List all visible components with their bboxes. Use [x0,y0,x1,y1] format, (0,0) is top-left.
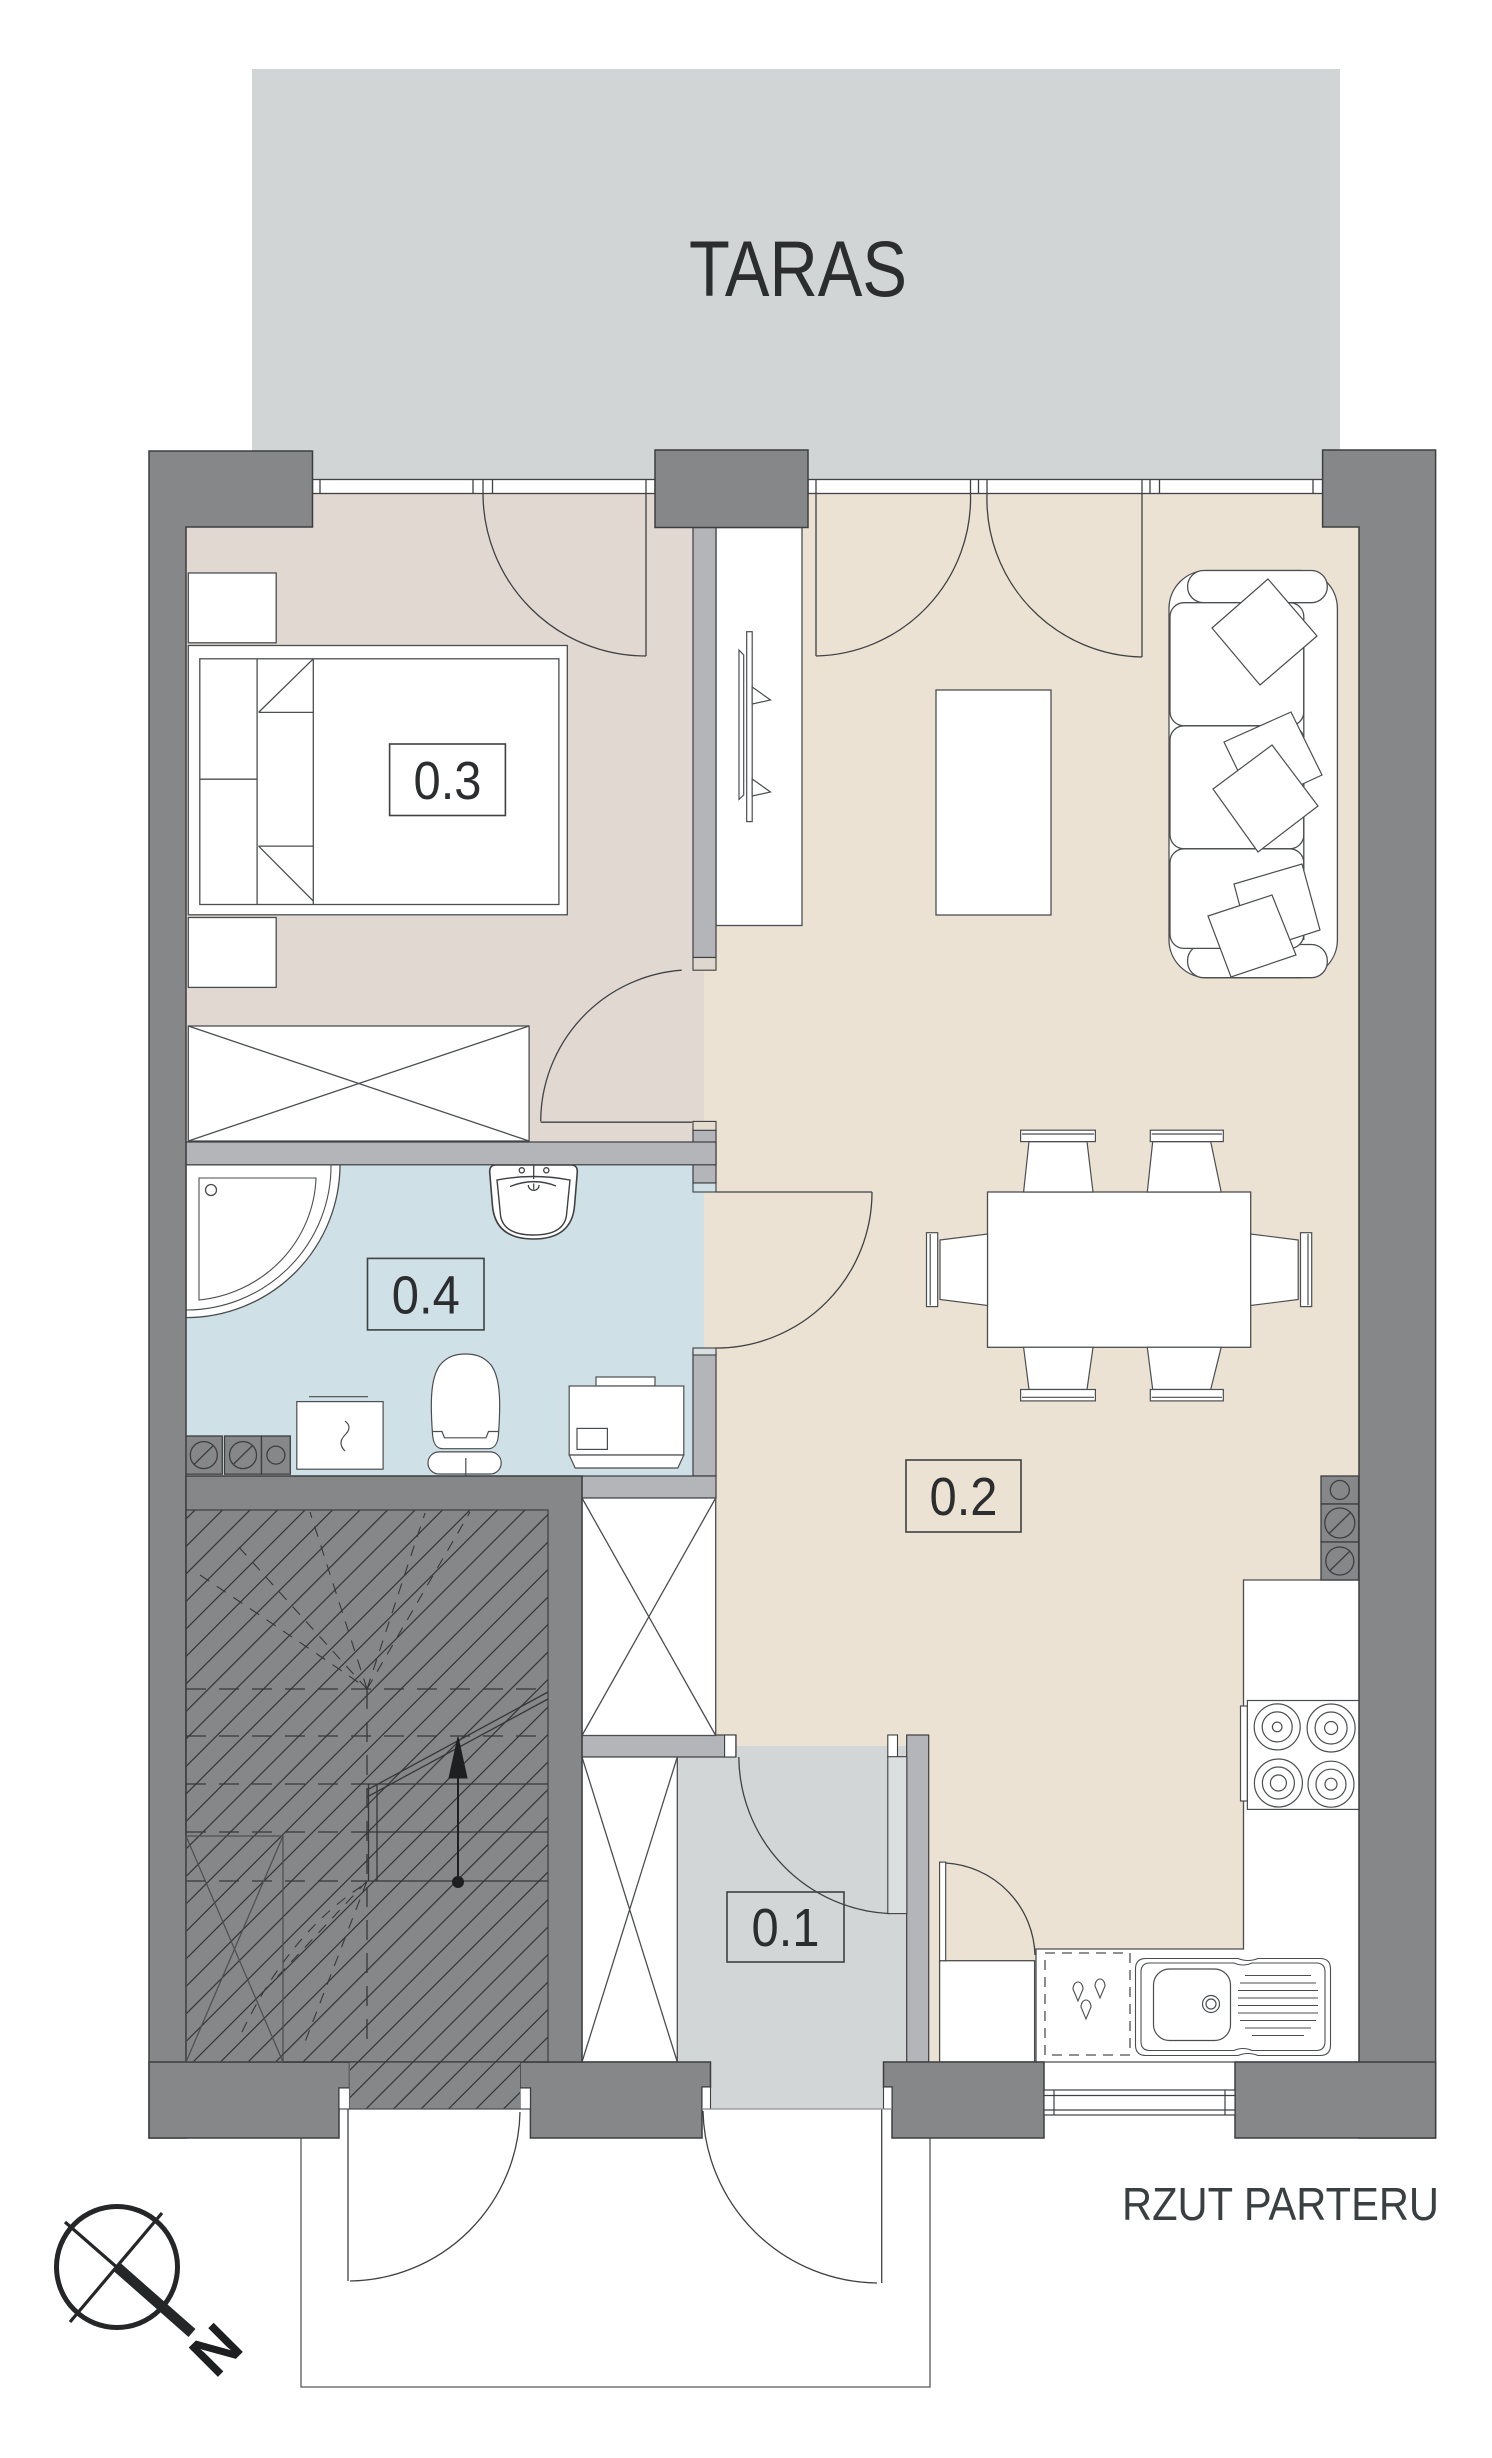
svg-text:0.3: 0.3 [414,751,482,811]
svg-text:RZUT PARTERU: RZUT PARTERU [1122,2178,1439,2230]
svg-text:0.2: 0.2 [930,1467,998,1527]
svg-text:0.4: 0.4 [392,1266,460,1326]
svg-text:0.1: 0.1 [752,1898,820,1958]
svg-text:TARAS: TARAS [689,224,907,313]
